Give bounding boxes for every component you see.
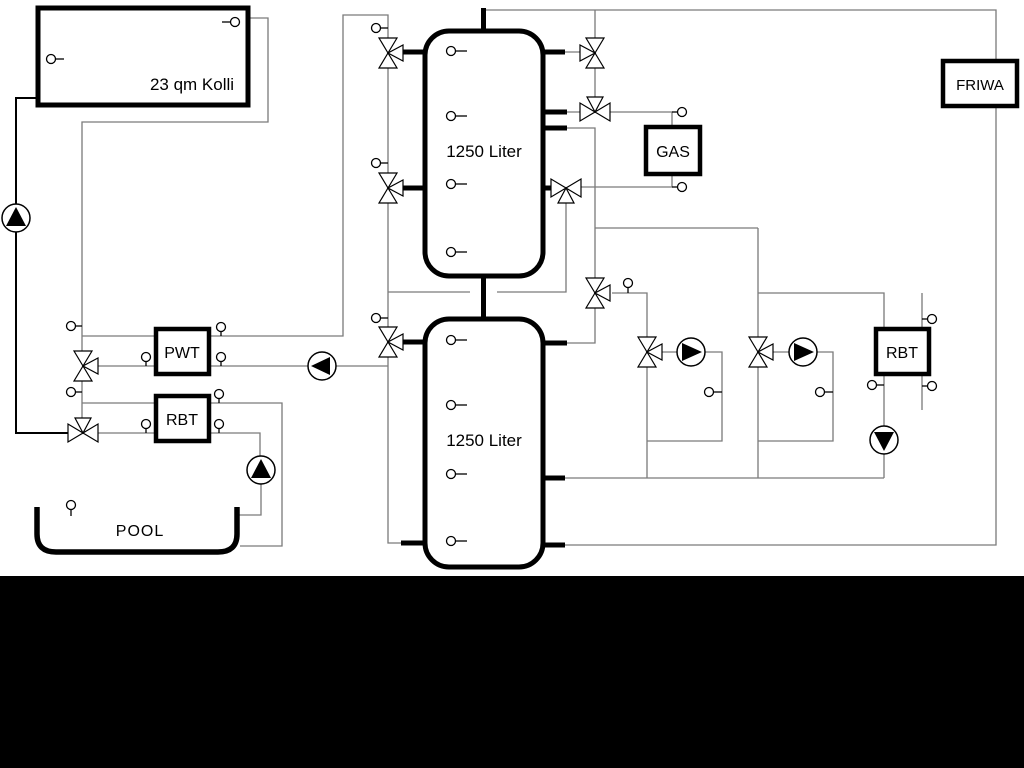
- temperature-sensor-icon: [922, 315, 937, 324]
- three-way-valve-icon: [638, 337, 662, 367]
- three-way-valve-icon: [551, 179, 581, 203]
- temperature-sensor-icon: [217, 323, 226, 337]
- three-way-valve-icon: [379, 327, 403, 357]
- pump-up-icon: [2, 204, 30, 232]
- rbt-left-box: RBT: [156, 396, 209, 441]
- three-way-valve-icon: [749, 337, 773, 367]
- solar-collector-label: 23 qm Kolli: [150, 75, 234, 94]
- temperature-sensor-icon: [67, 388, 83, 397]
- temperature-sensor-icon: [215, 390, 224, 404]
- three-way-valve-icon: [379, 38, 403, 68]
- temperature-sensor-icon: [868, 381, 885, 390]
- buffer-tank-2: 1250 Liter: [425, 319, 543, 567]
- temperature-sensor-icon: [705, 388, 723, 397]
- three-way-valve-icon: [580, 38, 604, 68]
- three-way-valve-icon: [74, 351, 98, 381]
- friwa-box: FRIWA: [943, 61, 1017, 106]
- friwa-label: FRIWA: [956, 77, 1004, 94]
- rbt-right-label: RBT: [886, 345, 918, 362]
- three-way-valve-icon: [586, 278, 610, 308]
- buffer-tank-1-label: 1250 Liter: [446, 142, 522, 161]
- pipe-solar-loop: [16, 98, 68, 433]
- temperature-sensor-icon: [922, 382, 937, 391]
- three-way-valve-icon: [580, 97, 610, 121]
- schematic-page: 23 qm Kolli 1250 Liter 1250 Liter PWT RB…: [0, 0, 1024, 768]
- temperature-sensor-icon: [672, 108, 687, 117]
- temperature-sensor-icon: [142, 353, 151, 367]
- pool-basin: POOL: [37, 507, 237, 552]
- three-way-valve-icon: [68, 418, 98, 442]
- pwt-heat-exchanger-box: PWT: [156, 329, 209, 374]
- rbt-right-box: RBT: [876, 329, 929, 374]
- temperature-sensor-icon: [372, 314, 389, 323]
- temperature-sensor-icon: [816, 388, 834, 397]
- temperature-sensor-icon: [624, 279, 633, 294]
- temperature-sensor-icon: [372, 24, 389, 33]
- pump-left-icon: [308, 352, 336, 380]
- footer-black-bar: [0, 576, 1024, 768]
- rbt-left-label: RBT: [166, 412, 198, 429]
- pump-right-icon: [677, 338, 705, 366]
- temperature-sensor-icon: [672, 183, 687, 192]
- temperature-sensor-icon: [372, 159, 389, 168]
- buffer-tank-1: 1250 Liter: [425, 31, 543, 276]
- pump-right-icon: [789, 338, 817, 366]
- pool-label: POOL: [116, 523, 164, 540]
- pump-up-icon: [247, 456, 275, 484]
- temperature-sensor-icon: [142, 420, 151, 434]
- gas-label: GAS: [656, 144, 690, 161]
- temperature-sensor-icon: [67, 322, 83, 331]
- pwt-label: PWT: [164, 345, 200, 362]
- temperature-sensor-icon: [67, 501, 76, 517]
- solar-collector-box: 23 qm Kolli: [38, 8, 248, 105]
- three-way-valve-icon: [379, 173, 403, 203]
- hydraulic-schematic-canvas: 23 qm Kolli 1250 Liter 1250 Liter PWT RB…: [0, 0, 1024, 768]
- temperature-sensor-icon: [215, 420, 224, 434]
- gas-boiler-box: GAS: [646, 127, 700, 174]
- temperature-sensor-icon: [217, 353, 226, 367]
- pump-down-icon: [870, 426, 898, 454]
- buffer-tank-2-label: 1250 Liter: [446, 431, 522, 450]
